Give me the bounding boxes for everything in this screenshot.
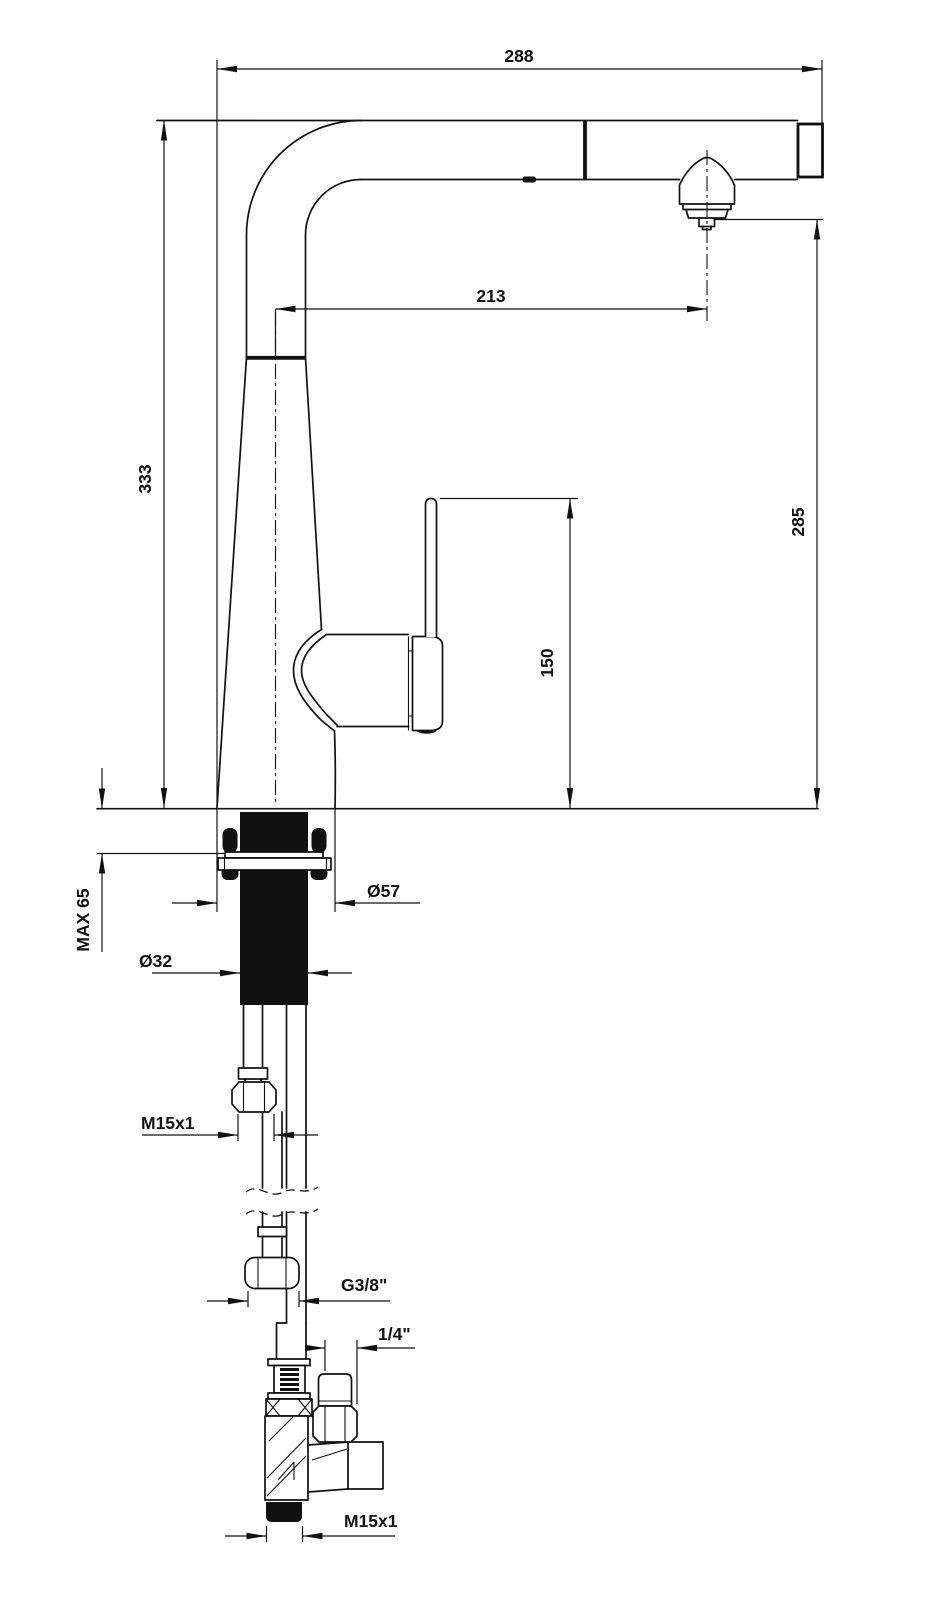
dim-label-thread-main: G3/8" — [341, 1275, 387, 1295]
valve-branch-outlet — [348, 1442, 383, 1489]
body-right-edge-upper — [306, 358, 322, 630]
dimension-thread-supply: M15x1 — [141, 1113, 318, 1141]
dim-label-thread-bottom: M15x1 — [344, 1511, 398, 1531]
g38-nut — [245, 1258, 299, 1289]
dimension-spout-reach: 213 — [276, 286, 708, 357]
dim-label-base-dia: Ø57 — [367, 881, 400, 901]
handle-bulge-inner — [302, 635, 338, 726]
valve-thread-bar — [280, 1368, 299, 1371]
valve-thread-bar — [280, 1388, 299, 1391]
dim-label-thread-branch: 1/4" — [378, 1324, 411, 1344]
page: { "drawing": { "type": "faucet-technical… — [0, 0, 951, 1600]
dimension-spout-height: 285 — [715, 220, 823, 809]
dim-label-counter-max: MAX 65 — [73, 888, 93, 951]
dim-label-thread-supply: M15x1 — [141, 1113, 195, 1133]
mount-stud-left — [223, 828, 238, 853]
dimension-thread-bottom: M15x1 — [225, 1511, 398, 1542]
valve-thread-bar — [280, 1378, 299, 1381]
dimension-handle-height: 150 — [440, 499, 578, 809]
neck-inner-curve — [306, 180, 362, 358]
body-right-edge-lower — [335, 731, 336, 808]
faucet-body — [157, 121, 823, 809]
mount-stud-right — [312, 828, 327, 853]
dim-label-hole-dia: Ø32 — [139, 951, 172, 971]
supply-collar-lower — [258, 1227, 287, 1237]
dim-label-spout-reach: 213 — [476, 286, 505, 306]
dim-label-total-height: 333 — [135, 464, 155, 493]
mount-washer-upper — [225, 852, 323, 858]
supply-pipe-lower — [263, 1112, 283, 1227]
ext-lines-g38 — [248, 1291, 299, 1307]
valve-thread-bar — [280, 1373, 299, 1376]
supply-pipe-end — [263, 1237, 283, 1258]
valve-flange-top — [268, 1359, 310, 1366]
mount-washer-plate — [218, 858, 331, 870]
quarter-nut — [313, 1406, 357, 1442]
valve-branch-detail — [312, 1449, 347, 1460]
mounting — [97, 809, 818, 1005]
dim-label-handle-height: 150 — [537, 648, 557, 677]
valve-flange-mid — [268, 1393, 310, 1399]
supply-nut-m15 — [232, 1082, 276, 1112]
valve-branch-bottom — [308, 1489, 348, 1492]
drawing-canvas: 288 213 333 285 150 MAX 6 — [0, 0, 951, 1600]
ext-lines-m15-top — [238, 1114, 274, 1141]
neck-outer-curve — [217, 121, 361, 809]
supply-pipe-upper — [244, 1005, 263, 1068]
ext-lines-m15-bottom — [267, 1526, 303, 1542]
handle-lever — [426, 499, 437, 638]
faucet-technical-drawing: 288 213 333 285 150 MAX 6 — [0, 0, 951, 1600]
handle-cap — [413, 637, 443, 731]
hose-coupling — [277, 1323, 307, 1359]
dimension-total-width: 288 — [217, 46, 822, 912]
dimensions: 288 213 333 285 150 MAX 6 — [73, 46, 823, 1542]
valve-thread-bar — [280, 1383, 299, 1386]
spout-end-cap — [798, 124, 823, 177]
dim-label-total-width: 288 — [504, 46, 533, 66]
valve-bottom-outlet — [266, 1502, 302, 1522]
supply-collar-upper — [239, 1068, 268, 1079]
dimension-counter-max: MAX 65 — [73, 768, 225, 952]
sprayhead-release-tab — [523, 177, 537, 183]
check-valve — [265, 1359, 383, 1522]
threaded-shank — [240, 812, 308, 1005]
plumbing — [232, 1005, 318, 1359]
dim-label-spout-height: 285 — [788, 507, 808, 536]
dimension-total-height: 333 — [135, 121, 164, 809]
